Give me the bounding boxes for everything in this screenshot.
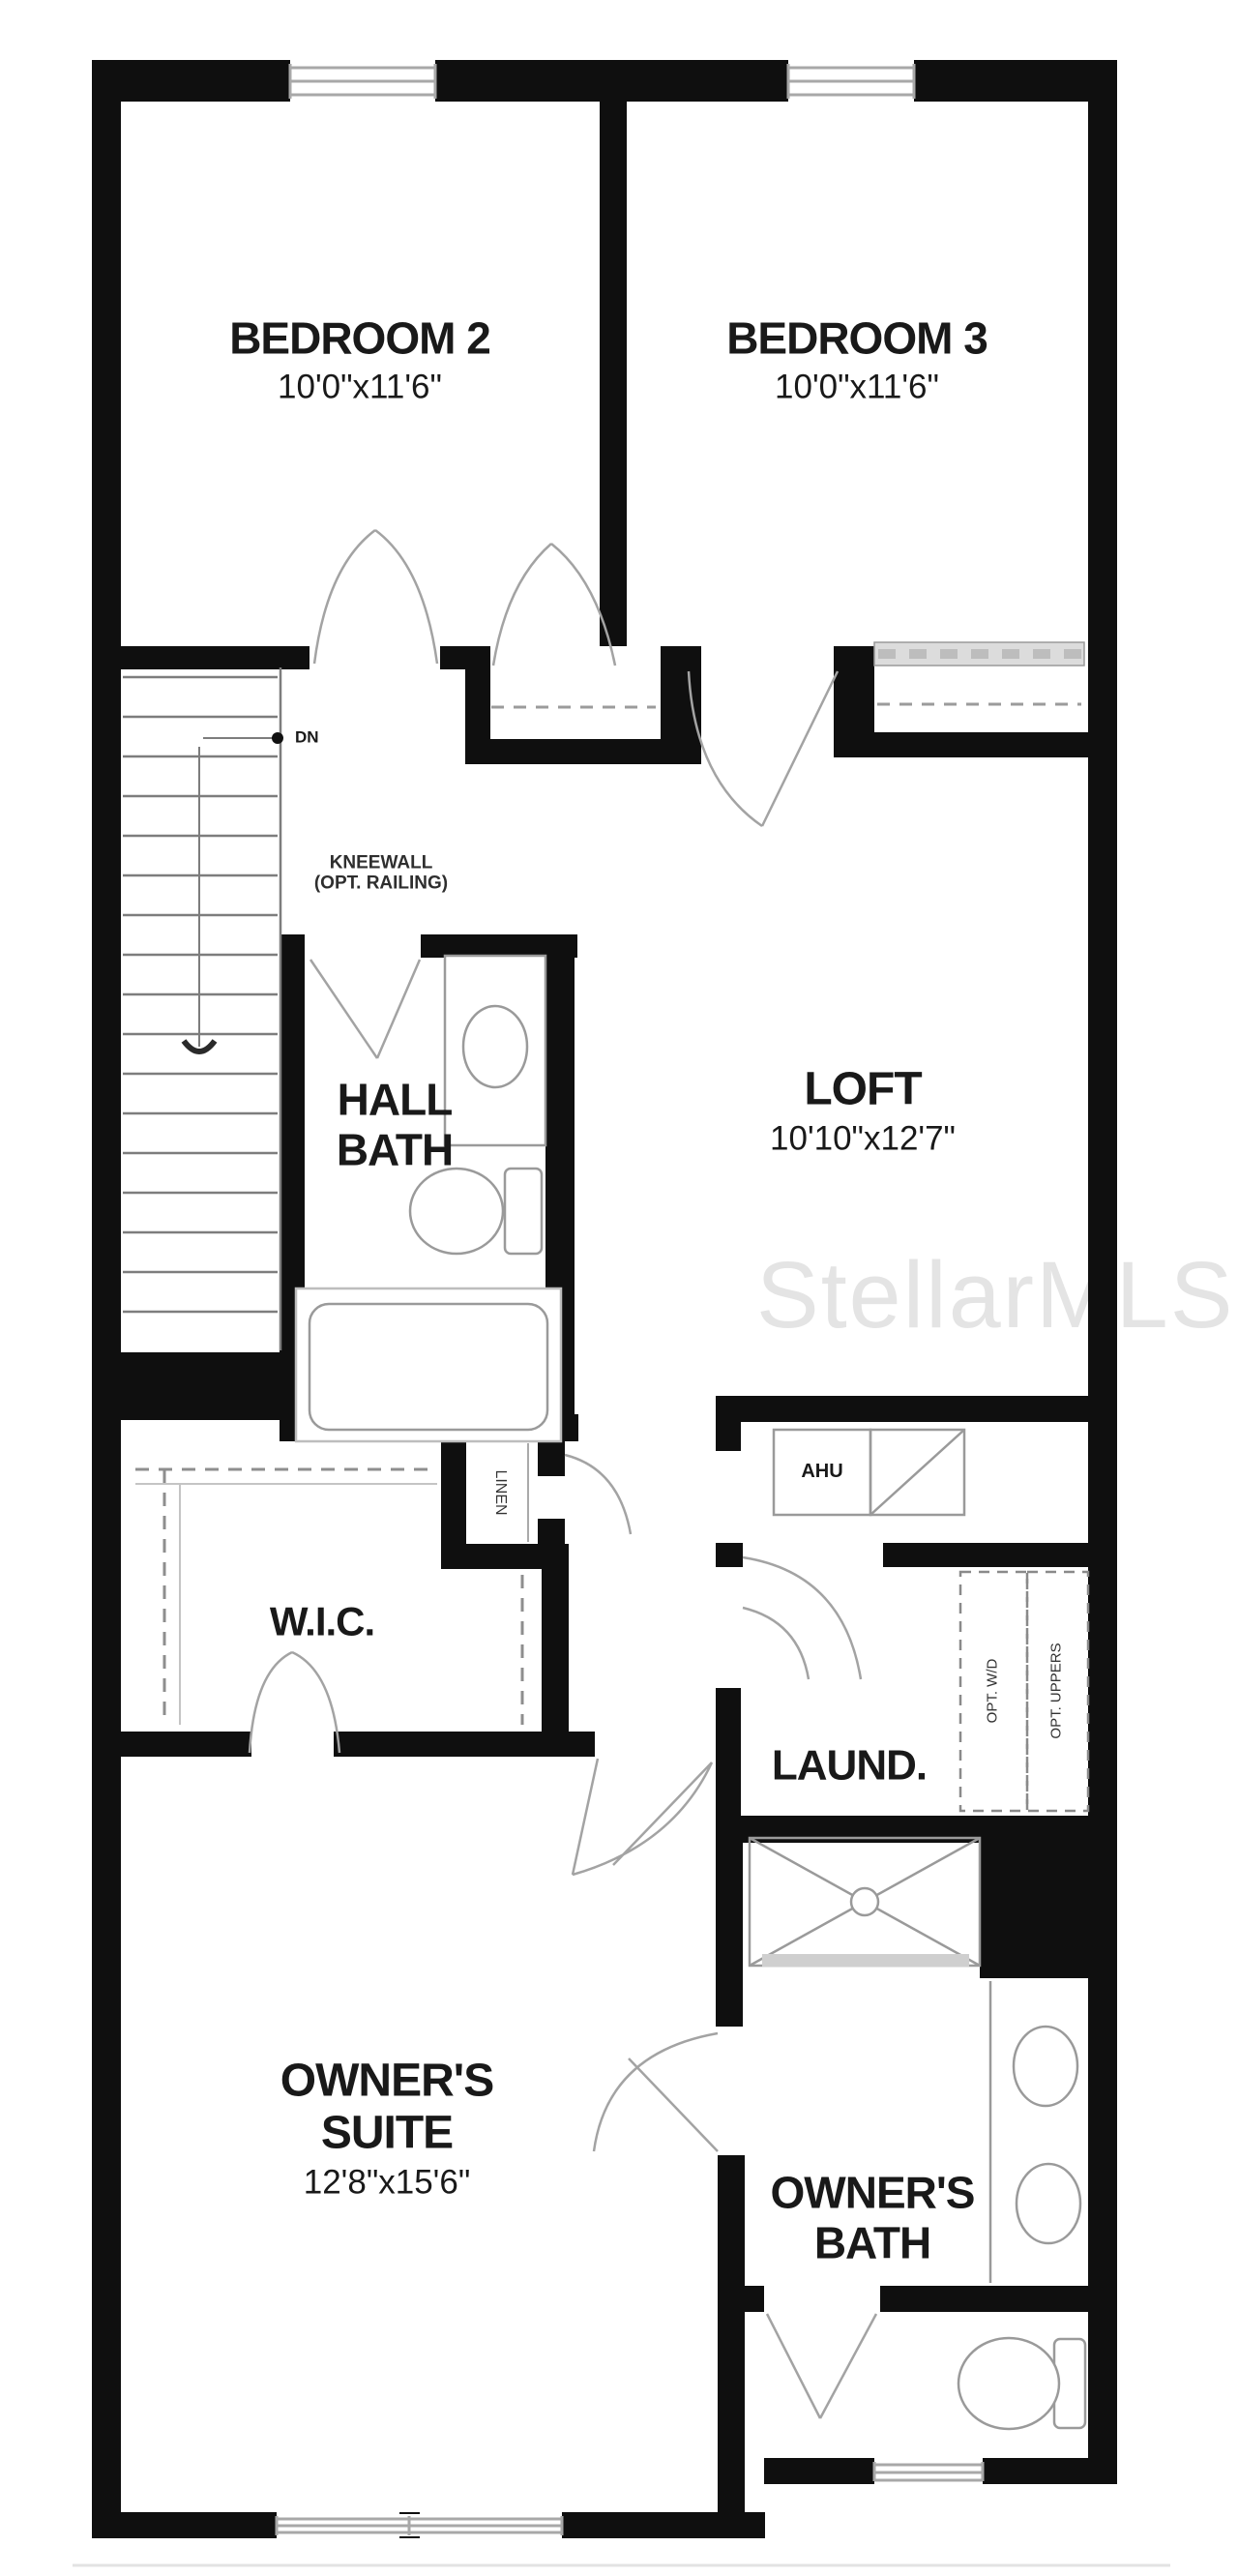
hall-bath-sink bbox=[463, 1006, 527, 1087]
floor-plan-drawing bbox=[0, 0, 1238, 2576]
toilet-room-door-swing bbox=[767, 2314, 876, 2418]
owners-bath-window bbox=[874, 2460, 983, 2482]
hall-bath-toilet-bowl bbox=[410, 1169, 503, 1254]
hall-bath-tub bbox=[309, 1304, 547, 1430]
bedroom2-door-swing bbox=[314, 530, 437, 664]
wic-door-swing bbox=[250, 1652, 339, 1753]
bedroom3-label: BEDROOM 3 10'0"x11'6" bbox=[726, 314, 987, 406]
room-name: BEDROOM 3 bbox=[726, 314, 987, 365]
room-name-line2: SUITE bbox=[280, 2107, 493, 2159]
bedroom2-closet-door-swing bbox=[493, 544, 615, 666]
hall-bath-toilet-tank bbox=[505, 1169, 542, 1254]
room-dims: 10'0"x11'6" bbox=[726, 368, 987, 405]
ahu-platform-diagonal bbox=[870, 1430, 964, 1515]
room-name: W.I.C. bbox=[270, 1598, 374, 1643]
owners-toilet-bowl bbox=[958, 2338, 1059, 2429]
linen-label: LINEN bbox=[491, 1469, 509, 1515]
stair-run-line bbox=[199, 738, 274, 1047]
owners-bath-door-swing bbox=[594, 2033, 718, 2151]
laundry-door-swing bbox=[743, 1557, 861, 1679]
owners-sink-2 bbox=[1017, 2164, 1080, 2243]
laundry-label: LAUND. bbox=[772, 1741, 927, 1789]
room-name-line2: BATH bbox=[337, 1125, 453, 1175]
wic-label: W.I.C. bbox=[270, 1598, 374, 1643]
hall-bath-label: HALL BATH bbox=[337, 1075, 453, 1174]
floor-plan-page: StellarMLS bbox=[0, 0, 1238, 2576]
hall-bath-door-swing bbox=[310, 960, 420, 1058]
bedroom3-window bbox=[788, 62, 914, 100]
closet-shelf-lines bbox=[491, 704, 1081, 707]
optional-wd-uppers-boxes bbox=[960, 1572, 1088, 1811]
owners-suite-window bbox=[277, 2514, 562, 2536]
room-name-line1: HALL bbox=[337, 1075, 453, 1125]
bedroom2-window bbox=[290, 62, 435, 100]
room-name-line2: BATH bbox=[771, 2218, 975, 2268]
loft-label: LOFT 10'10"x12'7" bbox=[770, 1064, 956, 1158]
stairs bbox=[123, 667, 283, 1350]
kneewall-line2: (OPT. RAILING) bbox=[314, 873, 448, 894]
room-dims: 10'10"x12'7" bbox=[770, 1119, 956, 1157]
shower-drain bbox=[851, 1888, 878, 1915]
owners-suite-label: OWNER'S SUITE 12'8"x15'6" bbox=[280, 2056, 493, 2202]
opt-uppers-label: OPT. UPPERS bbox=[1049, 1643, 1066, 1738]
opt-wd-label: OPT. W/D bbox=[986, 1659, 1002, 1724]
linen-door-swing bbox=[565, 1455, 631, 1534]
hall-bath-fixtures bbox=[296, 956, 561, 1441]
room-name: LAUND. bbox=[772, 1741, 927, 1789]
room-name: LOFT bbox=[770, 1064, 956, 1116]
bifold-closet-door bbox=[874, 642, 1084, 666]
stair-run-dot bbox=[272, 732, 283, 744]
owners-bath-label: OWNER'S BATH bbox=[771, 2168, 975, 2267]
ahu-label: AHU bbox=[801, 1461, 842, 1482]
kneewall-note: KNEEWALL (OPT. RAILING) bbox=[314, 853, 448, 895]
room-name-line1: OWNER'S bbox=[771, 2168, 975, 2218]
room-dims: 10'0"x11'6" bbox=[229, 368, 490, 405]
owners-suite-door-swing bbox=[573, 1759, 712, 1875]
chase-wall bbox=[980, 1828, 1117, 1978]
room-dims: 12'8"x15'6" bbox=[280, 2163, 493, 2201]
kneewall-line1: KNEEWALL bbox=[314, 853, 448, 873]
room-name: BEDROOM 2 bbox=[229, 314, 490, 365]
room-name-line1: OWNER'S bbox=[280, 2056, 493, 2108]
owners-sink-1 bbox=[1014, 2027, 1077, 2106]
stair-dn-label: DN bbox=[295, 727, 319, 746]
bedroom2-label: BEDROOM 2 10'0"x11'6" bbox=[229, 314, 490, 406]
bedroom3-door-swing bbox=[689, 671, 838, 826]
shower-curb bbox=[762, 1954, 969, 1967]
